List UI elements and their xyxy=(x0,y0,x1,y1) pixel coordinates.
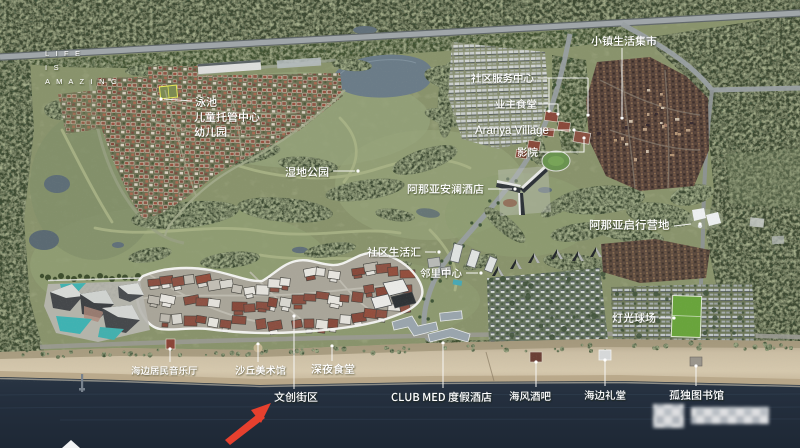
svg-text:Aranya Village: Aranya Village xyxy=(475,125,549,137)
svg-text:A M A Z I N G: A M A Z I N G xyxy=(45,77,119,86)
svg-text:I S: I S xyxy=(45,63,61,72)
svg-text:L I F E: L I F E xyxy=(45,49,82,58)
